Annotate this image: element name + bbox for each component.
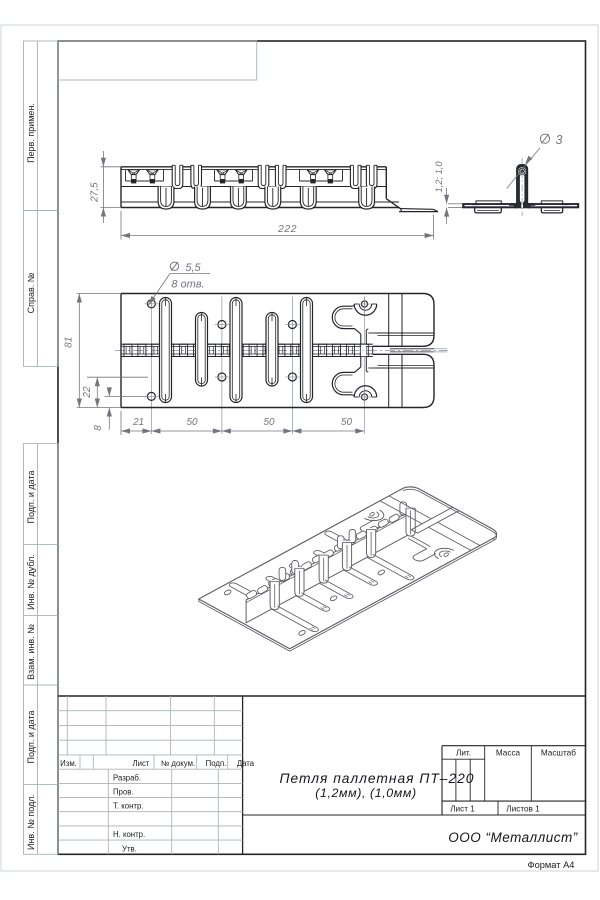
svg-text:21: 21 xyxy=(132,417,144,428)
svg-text:Н. контр.: Н. контр. xyxy=(113,830,145,839)
svg-text:50: 50 xyxy=(263,417,275,428)
svg-text:№ докум.: № докум. xyxy=(161,759,195,768)
svg-text:Разраб.: Разраб. xyxy=(113,773,141,782)
svg-text:8 отв.: 8 отв. xyxy=(171,279,204,291)
svg-text:Формат А4: Формат А4 xyxy=(528,860,575,870)
svg-text:Лист 1: Лист 1 xyxy=(450,805,475,814)
svg-text:Перв. примен.: Перв. примен. xyxy=(26,103,36,163)
svg-text:Листов 1: Листов 1 xyxy=(506,805,540,814)
svg-text:5,5: 5,5 xyxy=(185,262,201,274)
svg-text:Инв. № дубл.: Инв. № дубл. xyxy=(26,554,36,610)
svg-text:ООО “Металлист”: ООО “Металлист” xyxy=(448,830,578,845)
svg-text:Инв. № подл.: Инв. № подл. xyxy=(26,794,36,850)
svg-text:50: 50 xyxy=(341,417,353,428)
svg-text:Подп.: Подп. xyxy=(206,759,227,768)
svg-text:Масштаб: Масштаб xyxy=(541,749,576,758)
svg-text:222: 222 xyxy=(277,223,297,235)
svg-text:3: 3 xyxy=(556,133,563,147)
svg-text:8: 8 xyxy=(93,425,104,431)
svg-text:22: 22 xyxy=(82,386,93,399)
svg-text:Изм.: Изм. xyxy=(60,759,77,768)
svg-text:27,5: 27,5 xyxy=(90,182,101,203)
svg-text:Лист: Лист xyxy=(133,759,150,768)
svg-text:Подп. и дата: Подп. и дата xyxy=(26,710,36,763)
svg-text:(1,2мм), (1,0мм): (1,2мм), (1,0мм) xyxy=(315,786,416,800)
svg-text:Масса: Масса xyxy=(496,749,521,758)
svg-text:81: 81 xyxy=(64,337,75,348)
svg-text:50: 50 xyxy=(186,417,198,428)
svg-text:Пров.: Пров. xyxy=(113,788,134,797)
svg-text:Лит.: Лит. xyxy=(456,749,471,758)
svg-text:1,2; 1,0: 1,2; 1,0 xyxy=(434,161,444,193)
svg-text:Петля паллетная ПТ–220: Петля паллетная ПТ–220 xyxy=(280,771,475,786)
svg-text:Утв.: Утв. xyxy=(122,844,137,853)
svg-text:Т. контр.: Т. контр. xyxy=(113,802,143,811)
svg-text:Дата: Дата xyxy=(237,759,255,768)
svg-text:Взам. инв. №: Взам. инв. № xyxy=(26,624,36,680)
svg-text:Подп. и дата: Подп. и дата xyxy=(26,470,36,523)
svg-text:Справ. №: Справ. № xyxy=(26,272,36,313)
